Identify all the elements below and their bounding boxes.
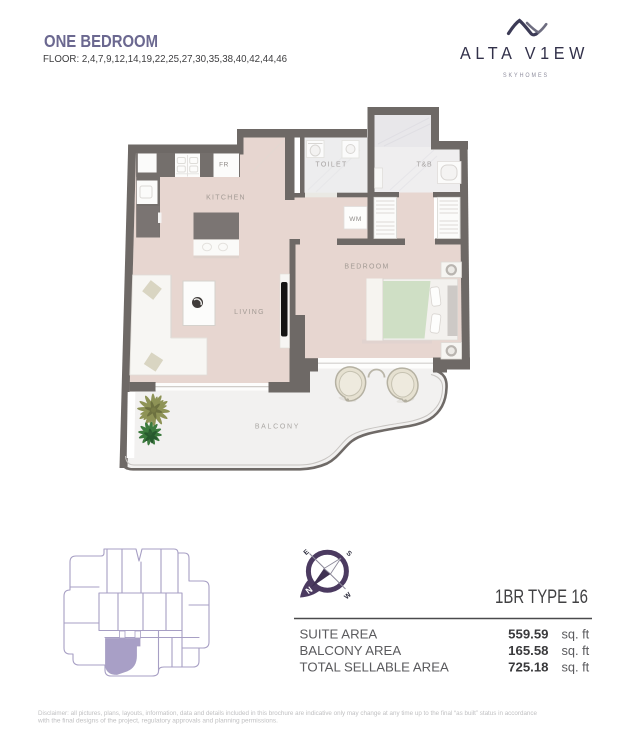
svg-text:165.58: 165.58 — [508, 643, 548, 658]
svg-text:TOILET: TOILET — [315, 162, 347, 169]
svg-text:SUITE AREA: SUITE AREA — [300, 627, 378, 642]
svg-text:BALCONY AREA: BALCONY AREA — [300, 643, 402, 658]
svg-text:559.59: 559.59 — [508, 627, 548, 642]
svg-text:ONE BEDROOM: ONE BEDROOM — [44, 31, 158, 51]
svg-text:ALTA V1EW: ALTA V1EW — [460, 43, 589, 63]
svg-text:Disclaimer: all pictures, plan: Disclaimer: all pictures, plans, layouts… — [38, 711, 538, 717]
svg-text:LIVING: LIVING — [234, 309, 265, 316]
svg-text:WM: WM — [349, 216, 362, 223]
svg-text:SKYHOMES: SKYHOMES — [503, 72, 549, 79]
svg-text:T&B: T&B — [416, 162, 432, 169]
svg-text:1BR TYPE 16: 1BR TYPE 16 — [495, 587, 588, 608]
svg-text:BEDROOM: BEDROOM — [344, 264, 389, 271]
svg-text:FLOOR: 2,4,7,9,12,14,19,22,25,: FLOOR: 2,4,7,9,12,14,19,22,25,27,30,35,3… — [43, 53, 287, 65]
svg-text:sq. ft: sq. ft — [562, 660, 590, 675]
svg-text:TOTAL SELLABLE AREA: TOTAL SELLABLE AREA — [300, 660, 449, 675]
svg-text:sq. ft: sq. ft — [562, 643, 590, 658]
svg-text:with the final designs of the: with the final designs of the project, r… — [37, 719, 278, 725]
svg-text:KITCHEN: KITCHEN — [206, 195, 246, 202]
svg-text:sq. ft: sq. ft — [562, 627, 590, 642]
svg-text:BALCONY: BALCONY — [255, 424, 300, 431]
svg-text:725.18: 725.18 — [508, 660, 548, 675]
svg-text:FR: FR — [219, 162, 229, 169]
